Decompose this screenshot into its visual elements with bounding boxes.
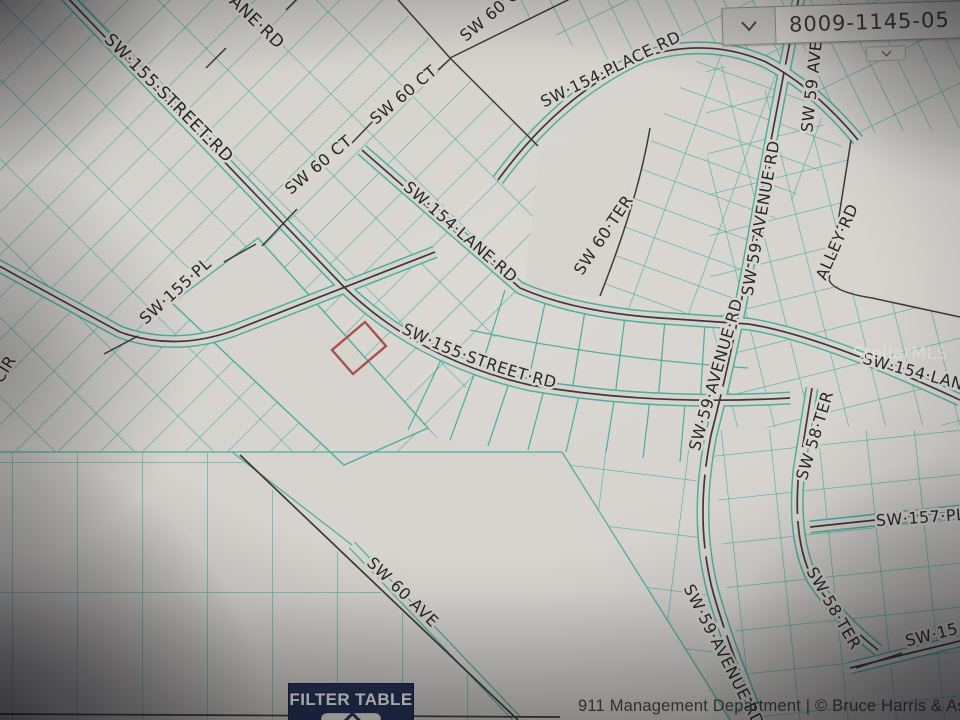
filter-table-button[interactable]: FILTER TABLE [288, 683, 414, 720]
chevron-up-icon [344, 712, 361, 720]
map-photo: SW·155·STREET·RDANE·RDSW 60 CTSW 60 CTSW… [0, 0, 960, 720]
stellar-mls-watermark: StellarMLS [853, 344, 948, 364]
map-attribution: 911 Management Department | © Bruce Harr… [578, 697, 960, 716]
chevron-down-icon [740, 20, 758, 33]
mini-dropdown-toggle[interactable] [866, 45, 906, 61]
chevron-down-icon [880, 50, 891, 57]
filter-table-label: FILTER TABLE [289, 690, 412, 710]
parcel-map[interactable]: SW·155·STREET·RDANE·RDSW 60 CTSW 60 CTSW… [0, 0, 960, 720]
parcel-id-dropdown[interactable]: 8009-1145-05 [721, 0, 960, 46]
dropdown-toggle[interactable] [721, 6, 776, 46]
collapse-handle[interactable] [321, 713, 381, 720]
parcel-id-value[interactable]: 8009-1145-05 [775, 0, 960, 44]
